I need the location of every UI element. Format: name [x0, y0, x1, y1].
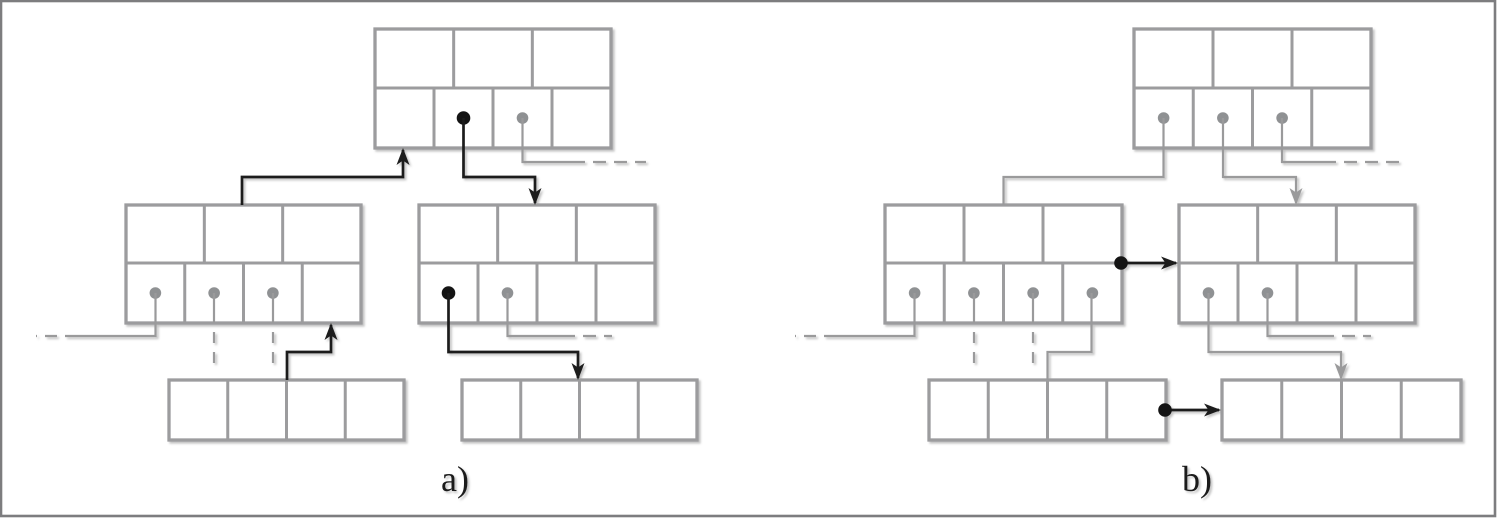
pointer-arrow-black [242, 150, 403, 205]
btree-node [1134, 29, 1371, 148]
link-origin-dot [1158, 403, 1172, 417]
pointer-arrow-black [287, 325, 331, 380]
btree-figure: a)b) [0, 0, 1499, 521]
btree-node [126, 205, 361, 323]
panel-label-b: b) [1182, 459, 1212, 499]
panel-label-a: a) [441, 459, 469, 499]
btree-node [375, 29, 611, 148]
diagram-canvas: a)b) [0, 0, 1499, 521]
leaf-node [929, 380, 1166, 440]
diagram-root: a)b) [1, 1, 1495, 516]
leaf-node [462, 380, 697, 440]
leaf-node [1222, 380, 1461, 440]
btree-node [419, 205, 655, 323]
link-origin-dot [1114, 256, 1128, 270]
panel-a: a) [36, 29, 697, 499]
panel-b: b) [795, 29, 1461, 499]
btree-node [885, 205, 1122, 323]
leaf-node [169, 380, 404, 440]
btree-node [1179, 205, 1415, 323]
